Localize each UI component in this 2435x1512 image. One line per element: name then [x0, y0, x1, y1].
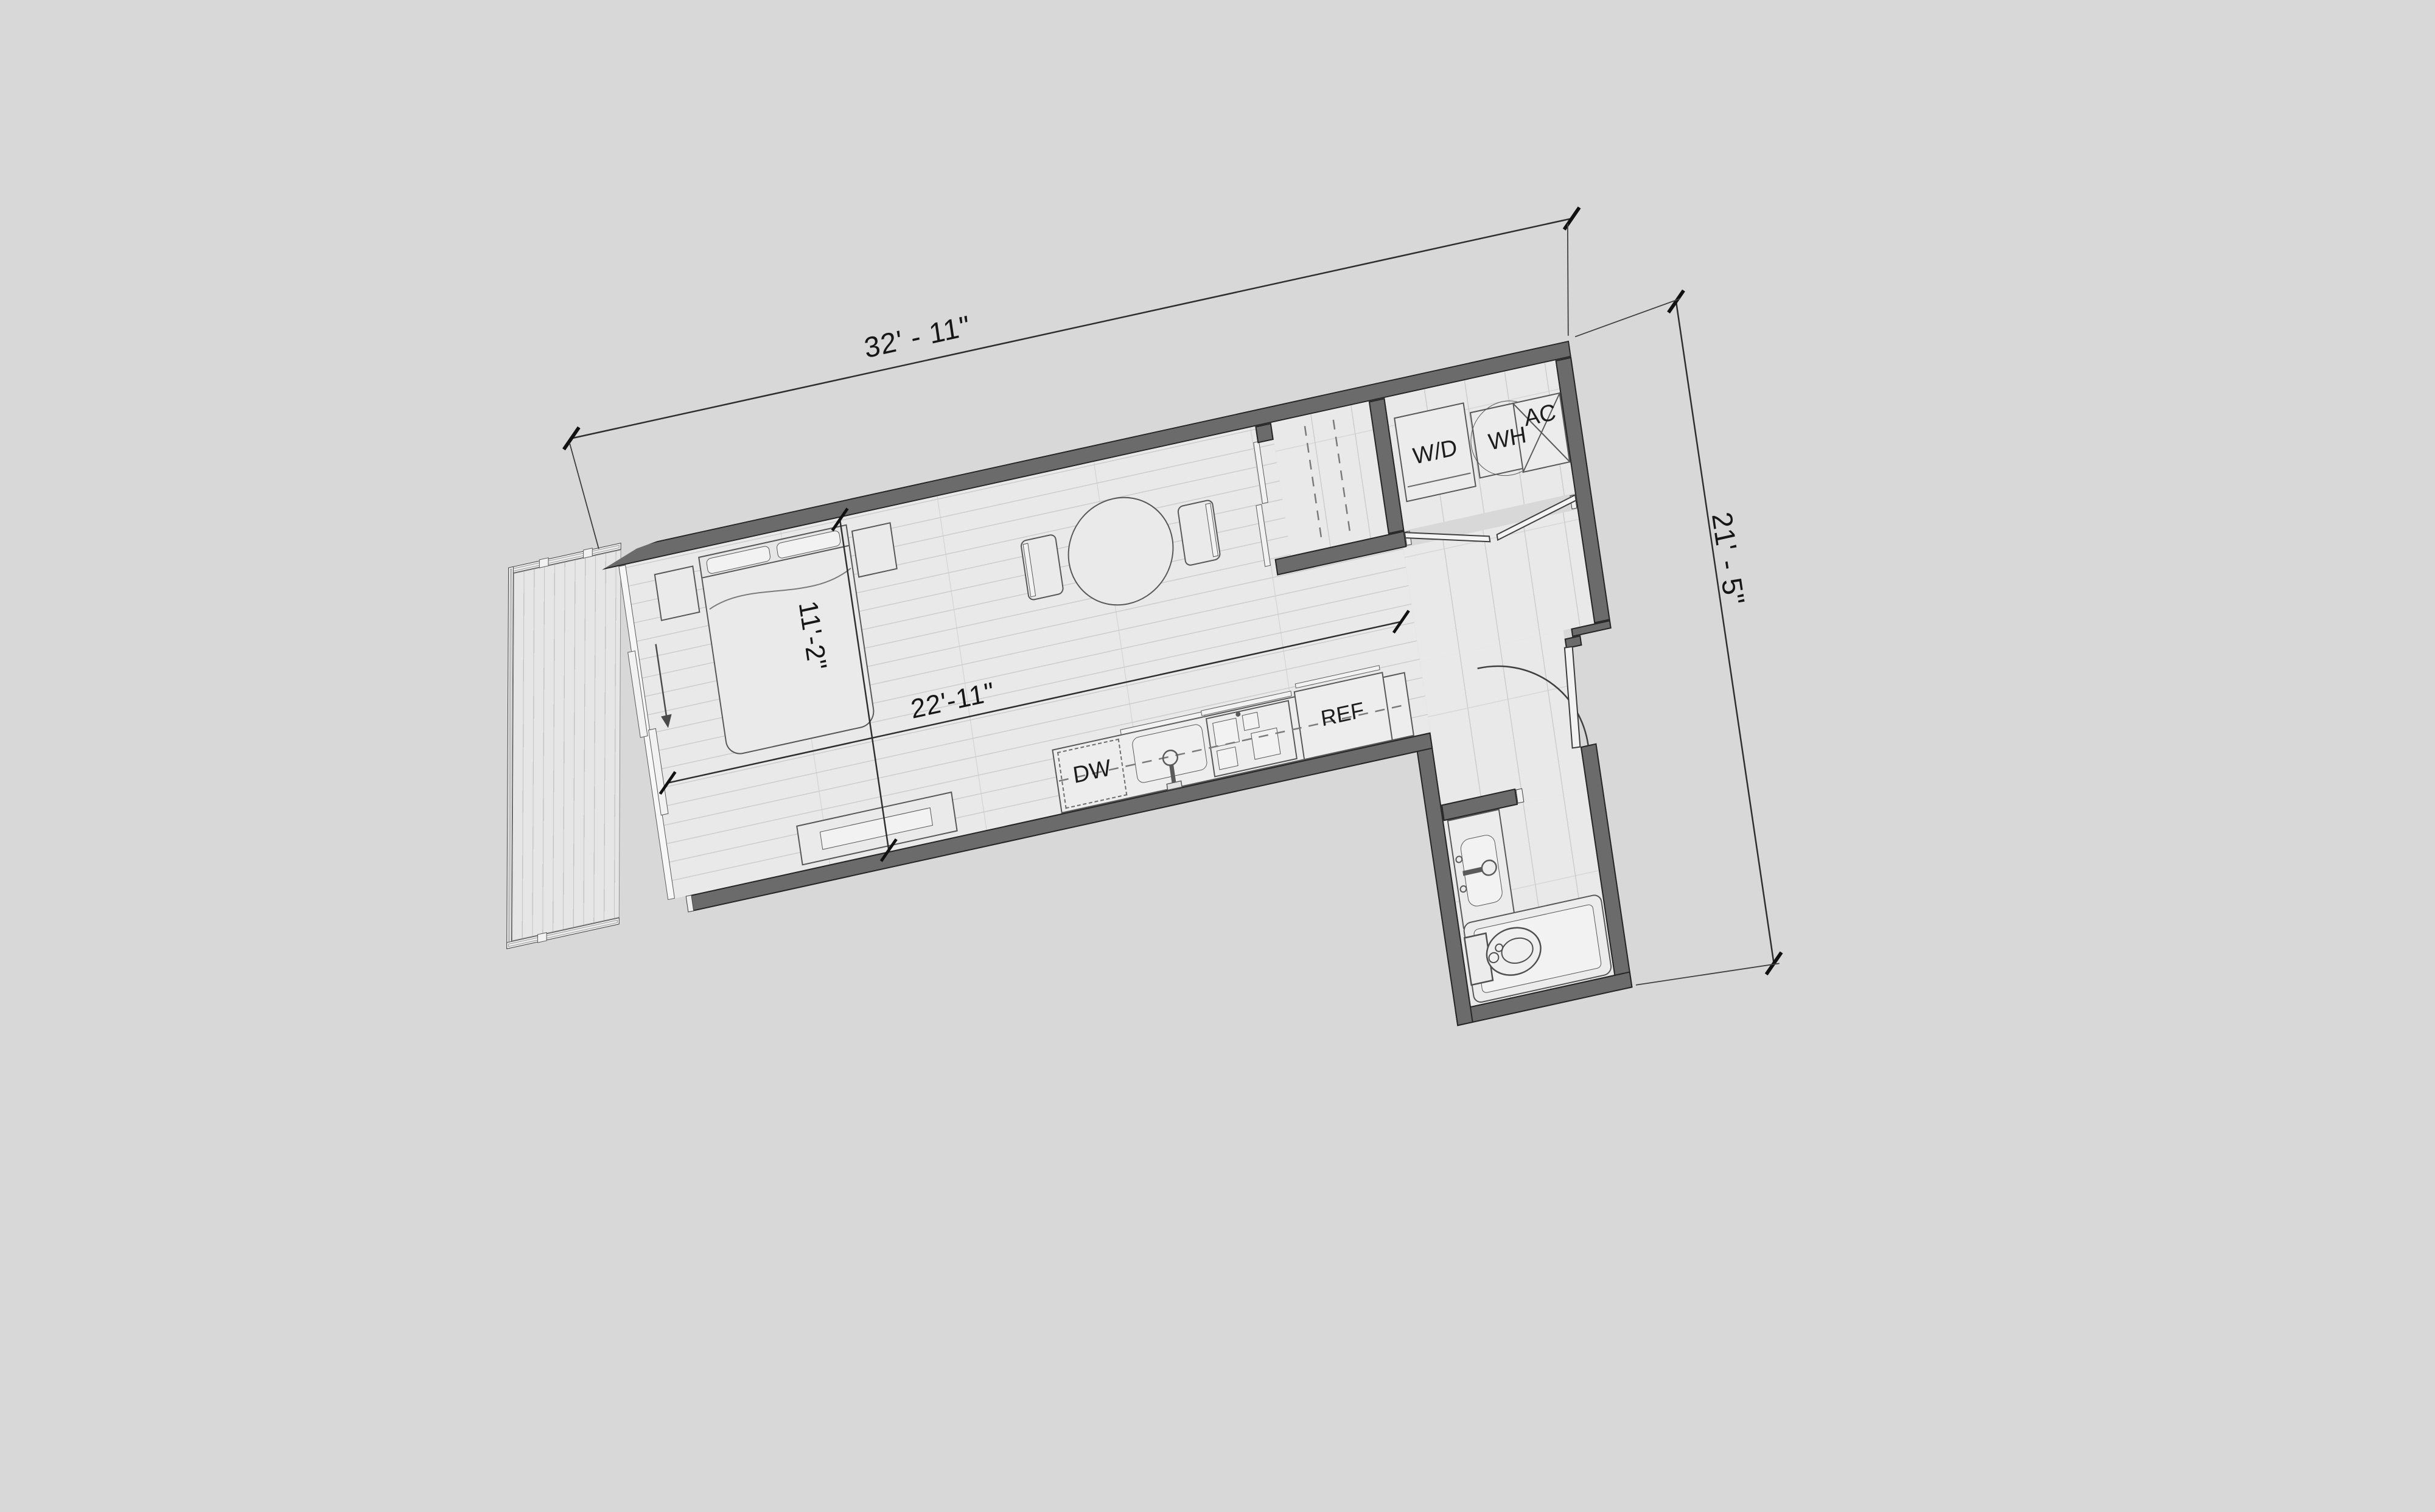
- dim-extension-line: [1573, 299, 1682, 336]
- dim-tick: [1666, 290, 1686, 312]
- balcony: [506, 543, 621, 949]
- stove-burner: [1251, 728, 1280, 760]
- stove-burner: [1217, 747, 1238, 770]
- floorplan-canvas: W/D WH AC REF DW 32' - 11" 21' - 5" 22'-…: [0, 0, 2435, 1370]
- dim-tick: [1562, 207, 1582, 229]
- dim-text-overall-width: 32' - 11": [790, 293, 1044, 381]
- stove-burner: [1242, 712, 1260, 731]
- door-jamb: [1405, 531, 1412, 546]
- stove-burner: [1212, 718, 1240, 747]
- closet-floor: [1271, 402, 1388, 556]
- wall-east-entry-stub: [1565, 635, 1582, 649]
- balcony-rail-post: [537, 932, 547, 943]
- dim-extension-line: [570, 441, 599, 552]
- nightstand-left: [654, 565, 700, 621]
- dim-line-overall-height: [1676, 301, 1774, 963]
- dim-extension-line: [1636, 954, 1780, 995]
- nightstand-right: [851, 522, 898, 578]
- dim-extension-line: [1552, 224, 1584, 336]
- dim-tick: [1764, 952, 1784, 974]
- dim-tick: [561, 427, 582, 449]
- dim-text-overall-height: 21' - 5": [1705, 509, 1752, 609]
- wall-closet-west-stub: [1255, 423, 1273, 444]
- balcony-deck: [512, 549, 621, 941]
